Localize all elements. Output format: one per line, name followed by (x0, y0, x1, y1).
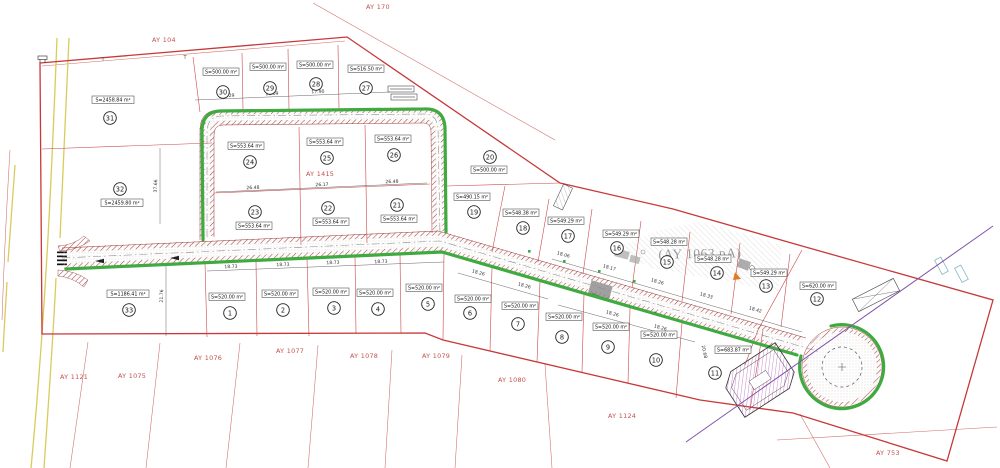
svg-text:27: 27 (362, 84, 370, 92)
svg-text:24: 24 (246, 158, 254, 166)
street-edge-line (8, 165, 15, 262)
region-label-ay1079: AY 1079 (422, 352, 450, 360)
svg-text:S=1186.41 m²: S=1186.41 m² (110, 291, 145, 297)
svg-text:23: 23 (251, 208, 259, 216)
parcel-31: 31S=2458.84 m² (92, 96, 134, 124)
svg-text:S=553.64 m²: S=553.64 m² (238, 223, 270, 229)
parcel-20: 20S=500.00 m² (471, 151, 507, 174)
cadastral-plan: (AY 1063 pA) (0, 0, 1000, 468)
entry-flare (58, 270, 88, 287)
left-street (3, 38, 69, 468)
svg-text:S=520.00 m²: S=520.00 m² (548, 314, 580, 320)
parcel-32: 32S=2459.80 m² (101, 183, 143, 207)
parcel-28: 28S=500.00 m² (297, 61, 333, 90)
parcel-22: 22S=553.64 m² (313, 202, 349, 226)
parcel-29: 29S=500.00 m² (250, 63, 286, 94)
parcel-26: 26S=553.64 m² (375, 135, 411, 161)
parcel-4: 4S=520.00 m² (357, 289, 393, 315)
plan-drawing: (AY 1063 pA) (0, 0, 1000, 468)
svg-text:S=553.64 m²: S=553.64 m² (383, 216, 415, 222)
svg-text:S=548.28 m²: S=548.28 m² (697, 256, 729, 262)
small-structure (553, 184, 572, 210)
svg-text:S=520.00 m²: S=520.00 m² (315, 289, 347, 295)
svg-text:S=553.64 m²: S=553.64 m² (309, 139, 341, 145)
svg-text:S=520.00 m²: S=520.00 m² (359, 290, 391, 296)
svg-text:S=549.29 m²: S=549.29 m² (605, 231, 637, 237)
dim-label: 26.17 (315, 182, 328, 188)
svg-text:S=548.38 m²: S=548.38 m² (505, 210, 537, 216)
parcel-7: 7S=520.00 m² (502, 302, 538, 330)
svg-text:31: 31 (106, 114, 114, 122)
parcel-8: 8S=520.00 m² (546, 313, 582, 343)
svg-text:S=500.00 m²: S=500.00 m² (252, 64, 284, 70)
parcel-9: 9S=520.00 m² (593, 323, 629, 353)
region-label-ay1075: AY 1075 (118, 372, 146, 380)
region-label-ay170: AY 170 (366, 3, 390, 11)
svg-text:S=549.29 m²: S=549.29 m² (550, 218, 582, 224)
dim-label: 18.42 (748, 305, 762, 314)
svg-text:12: 12 (813, 295, 821, 303)
svg-text:1: 1 (228, 309, 232, 317)
svg-text:S=500.00 m²: S=500.00 m² (473, 167, 505, 173)
parcel-21: 21S=553.64 m² (381, 199, 417, 223)
svg-text:S=620.00 m²: S=620.00 m² (802, 283, 834, 289)
svg-text:S=683.87 m²: S=683.87 m² (717, 347, 749, 353)
street-edge-line (3, 282, 7, 352)
parcel-25: 25S=553.64 m² (307, 138, 343, 164)
svg-text:S=520.00 m²: S=520.00 m² (408, 285, 440, 291)
region-label-ay1415: AY 1415 (306, 170, 334, 178)
region-label-ay104: AY 104 (152, 36, 176, 44)
region-label-ay1077: AY 1077 (276, 347, 304, 355)
svg-text:S=549.29 m²: S=549.29 m² (753, 270, 785, 276)
svg-text:S=520.00 m²: S=520.00 m² (643, 332, 675, 338)
dim-label: 37.66 (153, 179, 159, 192)
svg-text:29: 29 (266, 84, 274, 92)
svg-text:S=520.00 m²: S=520.00 m² (504, 303, 536, 309)
svg-text:20: 20 (486, 153, 494, 161)
dim-label: 21.76 (159, 289, 165, 302)
dim-label: 18.26 (517, 281, 531, 290)
parcel-24: 24S=553.64 m² (228, 142, 264, 168)
svg-text:32: 32 (116, 185, 124, 193)
svg-text:15: 15 (663, 258, 671, 266)
svg-text:S=520.00 m²: S=520.00 m² (211, 294, 243, 300)
svg-text:18: 18 (519, 224, 527, 232)
svg-text:28: 28 (312, 80, 320, 88)
svg-text:S=553.64 m²: S=553.64 m² (315, 219, 347, 225)
pole-mark: T (182, 55, 187, 61)
dim-label: 18.17 (602, 263, 616, 272)
svg-text:S=2458.84 m²: S=2458.84 m² (95, 97, 130, 103)
parcel-23: 23S=553.64 m² (236, 206, 272, 230)
svg-text:3: 3 (332, 304, 336, 312)
dim-label: 18.26 (605, 309, 619, 318)
svg-text:S=553.64 m²: S=553.64 m² (230, 143, 262, 149)
svg-text:4: 4 (376, 305, 380, 313)
svg-text:S=500.00 m²: S=500.00 m² (299, 62, 331, 68)
dim-label: 18.73 (374, 259, 387, 265)
station-label-boxes (388, 86, 417, 100)
svg-text:S=490.15 m²: S=490.15 m² (456, 194, 488, 200)
svg-text:21: 21 (393, 201, 401, 209)
svg-text:7: 7 (516, 320, 520, 328)
dim-label: 18.73 (326, 260, 339, 266)
dim-label: 20.68 (700, 345, 709, 359)
region-label-ay1076: AY 1076 (194, 354, 222, 362)
svg-text:S=516.50 m²: S=516.50 m² (350, 66, 382, 72)
parcel-19: 19S=490.15 m² (454, 193, 490, 218)
region-label-ay1121: AY 1121 (60, 373, 88, 381)
svg-text:S=500.00 m²: S=500.00 m² (205, 69, 237, 75)
parcel-6: 6S=520.00 m² (455, 295, 491, 319)
dim-label: 18.33 (699, 291, 713, 300)
svg-text:2: 2 (281, 306, 285, 314)
region-label-ay1124: AY 1124 (608, 412, 636, 420)
parcel-17: 17S=549.29 m² (548, 217, 584, 242)
svg-text:25: 25 (323, 154, 331, 162)
dim-label: 18.73 (224, 264, 237, 270)
dim-label: 26.48 (385, 179, 398, 185)
svg-text:S=520.00 m²: S=520.00 m² (595, 324, 627, 330)
parcel-33: 33S=1186.41 m² (107, 290, 149, 316)
parcel-12: 12S=620.00 m² (800, 282, 836, 305)
svg-text:14: 14 (713, 269, 721, 277)
dim-label: 18.26 (650, 277, 664, 286)
svg-text:16: 16 (613, 244, 621, 252)
svg-text:11: 11 (711, 369, 719, 377)
svg-text:9: 9 (606, 343, 610, 351)
svg-text:6: 6 (468, 309, 472, 317)
street-edge-line (31, 38, 57, 468)
svg-text:S=520.00 m²: S=520.00 m² (264, 291, 296, 297)
region-label-ay1078: AY 1078 (350, 352, 378, 360)
svg-text:5: 5 (426, 300, 430, 308)
svg-text:S=548.28 m²: S=548.28 m² (653, 239, 685, 245)
svg-text:S=553.64 m²: S=553.64 m² (377, 136, 409, 142)
dim-label: 18.73 (276, 262, 289, 268)
street-edge-line (60, 38, 69, 238)
dim-label: 18.26 (471, 268, 485, 277)
parcel-5: 5S=520.00 m² (406, 284, 442, 310)
svg-text:33: 33 (125, 306, 133, 314)
svg-text:S=520.00 m²: S=520.00 m² (457, 296, 489, 302)
svg-text:8: 8 (560, 333, 564, 341)
dim-label: 26.48 (246, 185, 259, 191)
parcel-10: 10S=520.00 m² (641, 331, 677, 366)
svg-text:19: 19 (470, 208, 478, 216)
dim-label: 18.06 (556, 250, 570, 259)
region-label-ay753: AY 753 (876, 449, 900, 457)
parcel-2: 2S=520.00 m² (262, 290, 298, 316)
svg-text:10: 10 (652, 356, 660, 364)
blue-marks (935, 257, 969, 282)
svg-text:17: 17 (564, 232, 572, 240)
svg-text:30: 30 (219, 88, 227, 96)
region-label-ay1080: AY 1080 (498, 376, 526, 384)
street-edge-line (44, 278, 56, 468)
svg-text:22: 22 (324, 204, 332, 212)
slanted-structure (852, 278, 899, 311)
svg-text:26: 26 (390, 151, 398, 159)
svg-text:S=2459.80 m²: S=2459.80 m² (104, 200, 139, 206)
parcel-3: 3S=520.00 m² (313, 288, 349, 314)
svg-text:13: 13 (762, 282, 770, 290)
parcel-18: 18S=548.38 m² (503, 209, 539, 234)
parcel-27: 27S=516.50 m² (348, 65, 384, 94)
parcel-1: 1S=520.00 m² (209, 293, 245, 319)
